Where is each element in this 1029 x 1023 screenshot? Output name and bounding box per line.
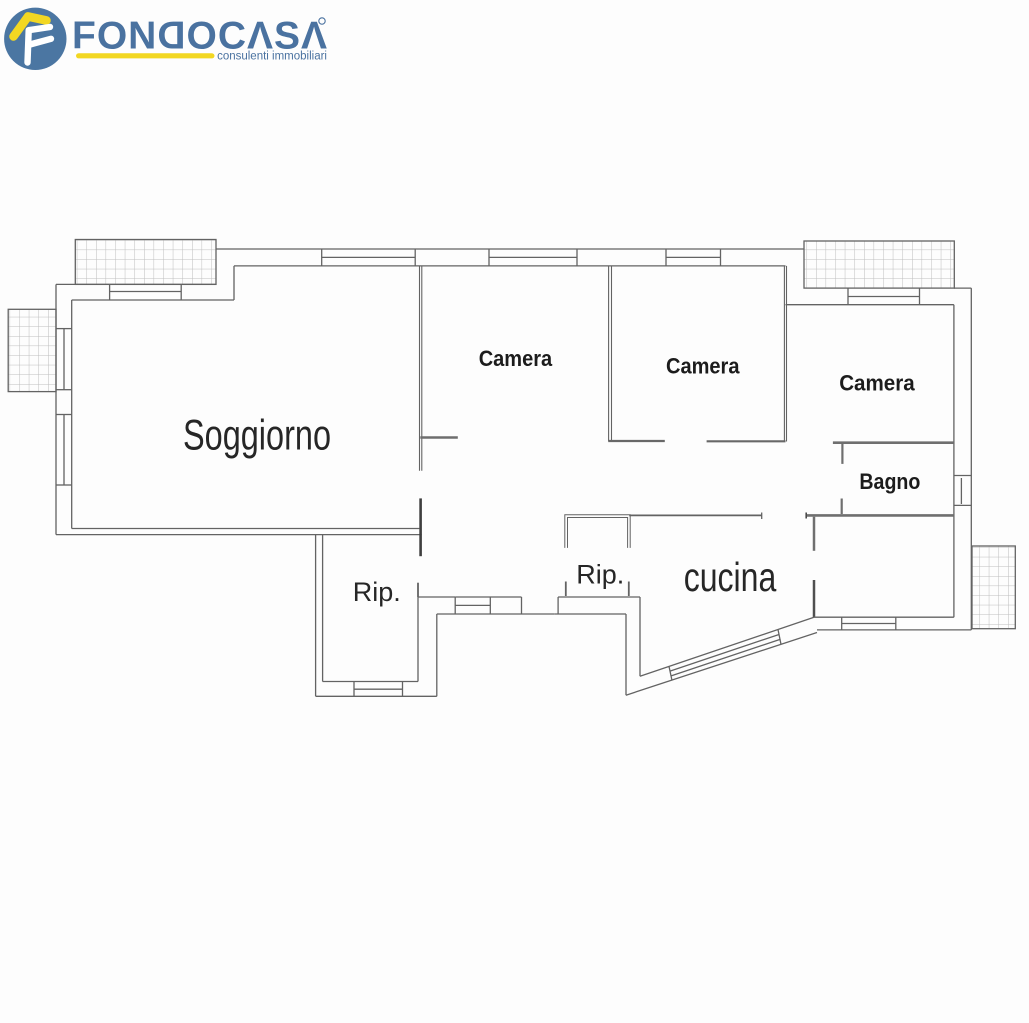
svg-text:FON: FON (72, 15, 157, 58)
svg-text:Camera: Camera (479, 346, 553, 371)
svg-text:Camera: Camera (839, 371, 915, 396)
svg-text:Camera: Camera (666, 353, 740, 378)
svg-text:Bagno: Bagno (859, 469, 920, 494)
svg-text:D: D (156, 15, 185, 58)
svg-text:Rip.: Rip. (353, 577, 401, 607)
svg-text:cucina: cucina (684, 554, 777, 600)
svg-text:Soggiorno: Soggiorno (183, 412, 331, 460)
svg-text:Rip.: Rip. (576, 560, 624, 590)
svg-text:consulenti immobiliari: consulenti immobiliari (217, 51, 327, 63)
